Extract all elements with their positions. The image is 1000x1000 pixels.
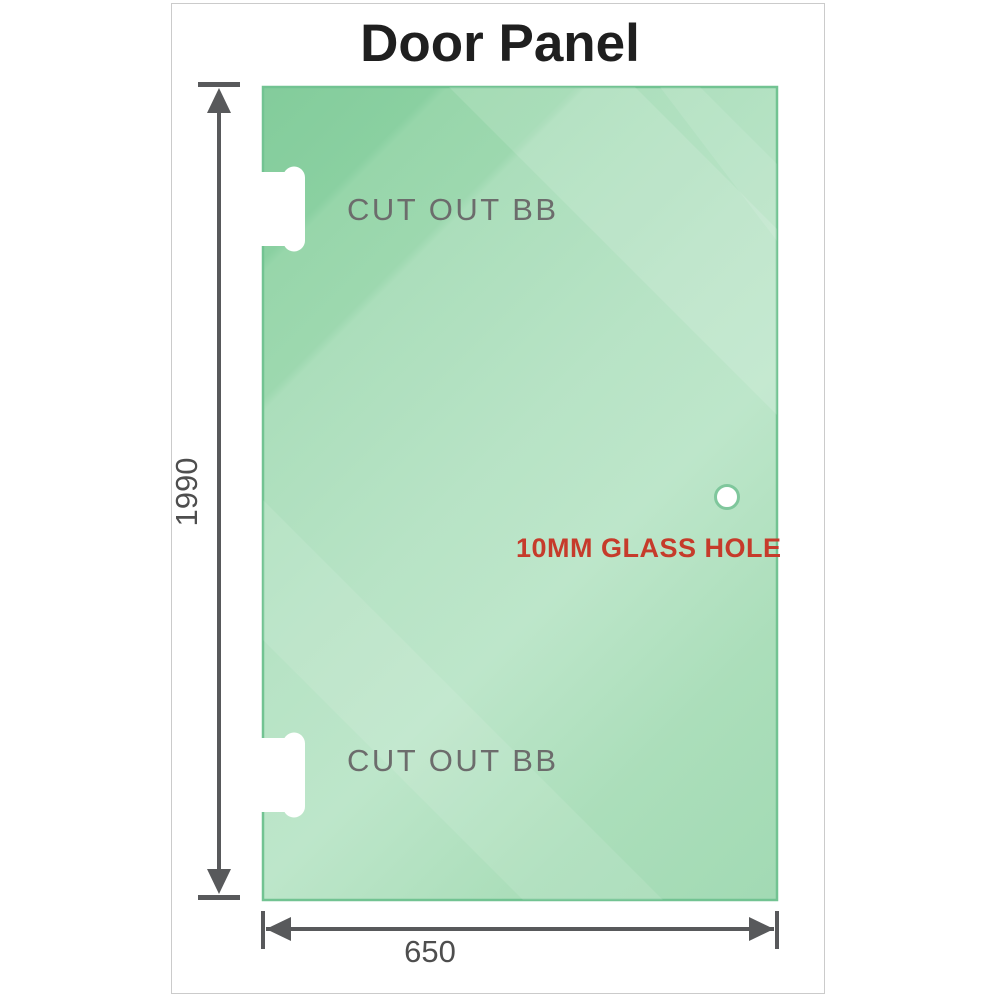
dimension-cap-bottom xyxy=(198,895,240,900)
cutout-top-notch xyxy=(260,167,305,252)
height-dimension-value: 1990 xyxy=(169,426,205,558)
arrow-right-icon xyxy=(749,917,774,941)
glass-hole-label: 10MM GLASS HOLE xyxy=(516,533,782,564)
dimension-tick-right xyxy=(775,911,779,949)
arrow-down-icon xyxy=(207,869,231,894)
cutout-bottom-notch xyxy=(260,733,305,818)
glass-hole xyxy=(716,486,739,509)
panel-drawing xyxy=(0,0,1000,1000)
cutout-bottom-label: CUT OUT BB xyxy=(347,743,559,779)
width-dimension-value: 650 xyxy=(395,934,465,970)
width-dimension xyxy=(261,911,779,949)
dimension-tick-left xyxy=(261,911,265,949)
dimension-cap-top xyxy=(198,82,240,87)
door-panel-diagram: Door Panel xyxy=(0,0,1000,1000)
cutout-top-label: CUT OUT BB xyxy=(347,192,559,228)
